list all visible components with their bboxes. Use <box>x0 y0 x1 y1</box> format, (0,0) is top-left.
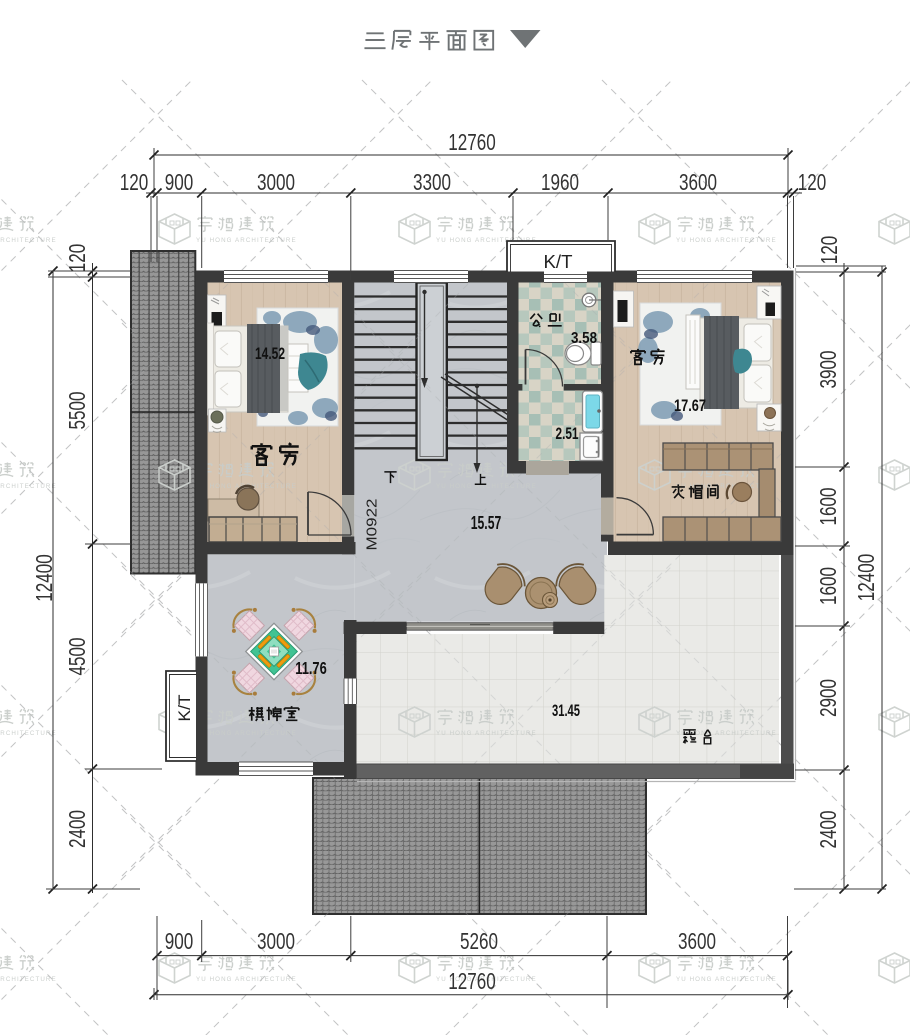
svg-text:2.51: 2.51 <box>556 424 579 443</box>
svg-text:3900: 3900 <box>815 351 841 389</box>
svg-text:K/T: K/T <box>544 252 573 272</box>
svg-text:1600: 1600 <box>815 488 841 526</box>
svg-text:120: 120 <box>816 236 842 265</box>
svg-text:YU HONG ARCHITECTURE: YU HONG ARCHITECTURE <box>676 976 777 983</box>
svg-text:120: 120 <box>798 169 827 195</box>
svg-text:12400: 12400 <box>853 554 879 602</box>
svg-text:11.76: 11.76 <box>295 658 327 678</box>
svg-text:12760: 12760 <box>448 968 496 994</box>
svg-text:YU HONG ARCHITECTURE: YU HONG ARCHITECTURE <box>0 976 57 983</box>
svg-text:YU HONG ARCHITECTURE: YU HONG ARCHITECTURE <box>196 976 297 983</box>
svg-text:2400: 2400 <box>815 811 841 849</box>
svg-text:31.45: 31.45 <box>552 701 580 720</box>
svg-text:12400: 12400 <box>31 554 57 602</box>
svg-text:YU HONG ARCHITECTURE: YU HONG ARCHITECTURE <box>436 730 537 737</box>
svg-text:YU HONG ARCHITECTURE: YU HONG ARCHITECTURE <box>196 237 297 244</box>
svg-text:YU HONG ARCHITECTURE: YU HONG ARCHITECTURE <box>436 483 537 490</box>
svg-text:3300: 3300 <box>413 169 451 195</box>
svg-text:1960: 1960 <box>541 169 579 195</box>
svg-text:YU HONG ARCHITECTURE: YU HONG ARCHITECTURE <box>0 237 57 244</box>
svg-text:14.52: 14.52 <box>255 344 285 363</box>
svg-text:120: 120 <box>120 169 149 195</box>
svg-text:YU HONG ARCHITECTURE: YU HONG ARCHITECTURE <box>196 730 297 737</box>
svg-text:3600: 3600 <box>679 169 717 195</box>
svg-text:3000: 3000 <box>257 928 295 954</box>
svg-text:2900: 2900 <box>815 679 841 717</box>
svg-text:900: 900 <box>165 169 194 195</box>
svg-text:K/T: K/T <box>175 695 194 722</box>
svg-text:15.57: 15.57 <box>471 512 502 533</box>
svg-text:3000: 3000 <box>257 169 295 195</box>
svg-text:12760: 12760 <box>448 129 496 155</box>
svg-text:YU HONG ARCHITECTURE: YU HONG ARCHITECTURE <box>0 730 57 737</box>
svg-text:120: 120 <box>64 244 90 273</box>
svg-text:3600: 3600 <box>678 928 716 954</box>
svg-text:M0922: M0922 <box>364 499 381 551</box>
svg-text:5500: 5500 <box>64 392 90 430</box>
svg-text:900: 900 <box>165 928 194 954</box>
svg-text:4500: 4500 <box>64 638 90 676</box>
svg-text:3.58: 3.58 <box>571 330 597 347</box>
svg-text:17.67: 17.67 <box>674 396 706 415</box>
svg-text:YU HONG ARCHITECTURE: YU HONG ARCHITECTURE <box>676 237 777 244</box>
svg-text:5260: 5260 <box>460 928 498 954</box>
svg-text:1600: 1600 <box>815 567 841 605</box>
svg-text:2400: 2400 <box>64 810 90 848</box>
